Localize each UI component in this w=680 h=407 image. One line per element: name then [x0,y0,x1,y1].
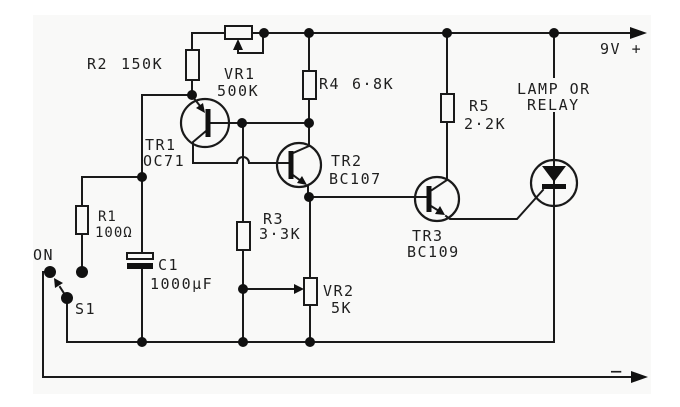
vr1-ref-label: VR1 [224,65,256,83]
junction-dot [237,118,247,128]
junction-dot [305,337,315,347]
junction-dot [259,28,269,38]
resistor-r3-body [237,222,250,250]
resistor-r1-body [76,206,88,234]
switch-ref-label: S1 [75,300,96,318]
tr3-value-label: BC109 [407,243,460,261]
c1-value-label: 1000µF [150,275,213,293]
transistor-tr3-circle [415,177,459,221]
r1-value-label: 100Ω [95,225,133,241]
c1-ref-label: C1 [158,256,179,274]
vr2-ref-label: VR2 [323,282,355,300]
junction-dot [304,118,314,128]
vr1-value-label: 500K [217,82,259,100]
r3-value-label: 3·3K [259,225,301,243]
switch-common-contact [61,292,73,304]
vr2-value-label: 5K [331,299,352,317]
junction-dot [238,337,248,347]
junction-dot [549,28,559,38]
r4-value-label: 6·8K [352,75,394,93]
resistor-r2-body [186,50,199,80]
tr1-value-label: OC71 [143,152,185,170]
junction-dot [137,337,147,347]
scr-cathode-bar [542,184,566,189]
tr2-ref-label: TR2 [331,152,363,170]
junction-dot [304,28,314,38]
switch-contact-on [44,266,56,278]
r4-ref-label: R4 [319,75,340,93]
resistor-r5-body [441,94,454,122]
potentiometer-vr1-body [225,26,252,39]
r2-ref-label: R2 [87,55,108,73]
negative-rail-label: − [610,359,622,383]
switch-on-label: ON [33,246,54,264]
capacitor-c1-plate-negative [127,263,153,269]
tr2-value-label: BC107 [329,170,382,188]
potentiometer-vr2-body [304,278,317,305]
junction-dot [187,90,197,100]
junction-dot [304,192,314,202]
junction-dot [442,28,452,38]
r2-value-label: 150K [121,55,163,73]
schematic-canvas: R2 150K VR1 500K R4 6·8K R5 2·2K LAMP OR… [0,0,680,407]
junction-dot [238,284,248,294]
positive-rail-label: 9V + [600,40,642,58]
resistor-r4-body [303,71,316,99]
capacitor-c1-plate-positive [127,253,153,259]
junction-dot [137,172,147,182]
r5-value-label: 2·2K [464,115,506,133]
load-label-line2: RELAY [527,96,580,114]
r1-ref-label: R1 [98,209,117,225]
switch-contact-r1 [76,266,88,278]
r5-ref-label: R5 [469,97,490,115]
